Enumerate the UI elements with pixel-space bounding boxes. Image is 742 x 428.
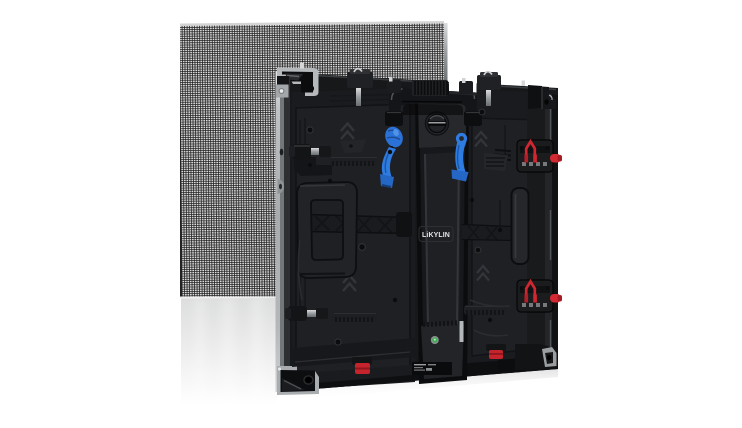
svg-text:LiKYLIN: LiKYLIN [422,232,450,239]
